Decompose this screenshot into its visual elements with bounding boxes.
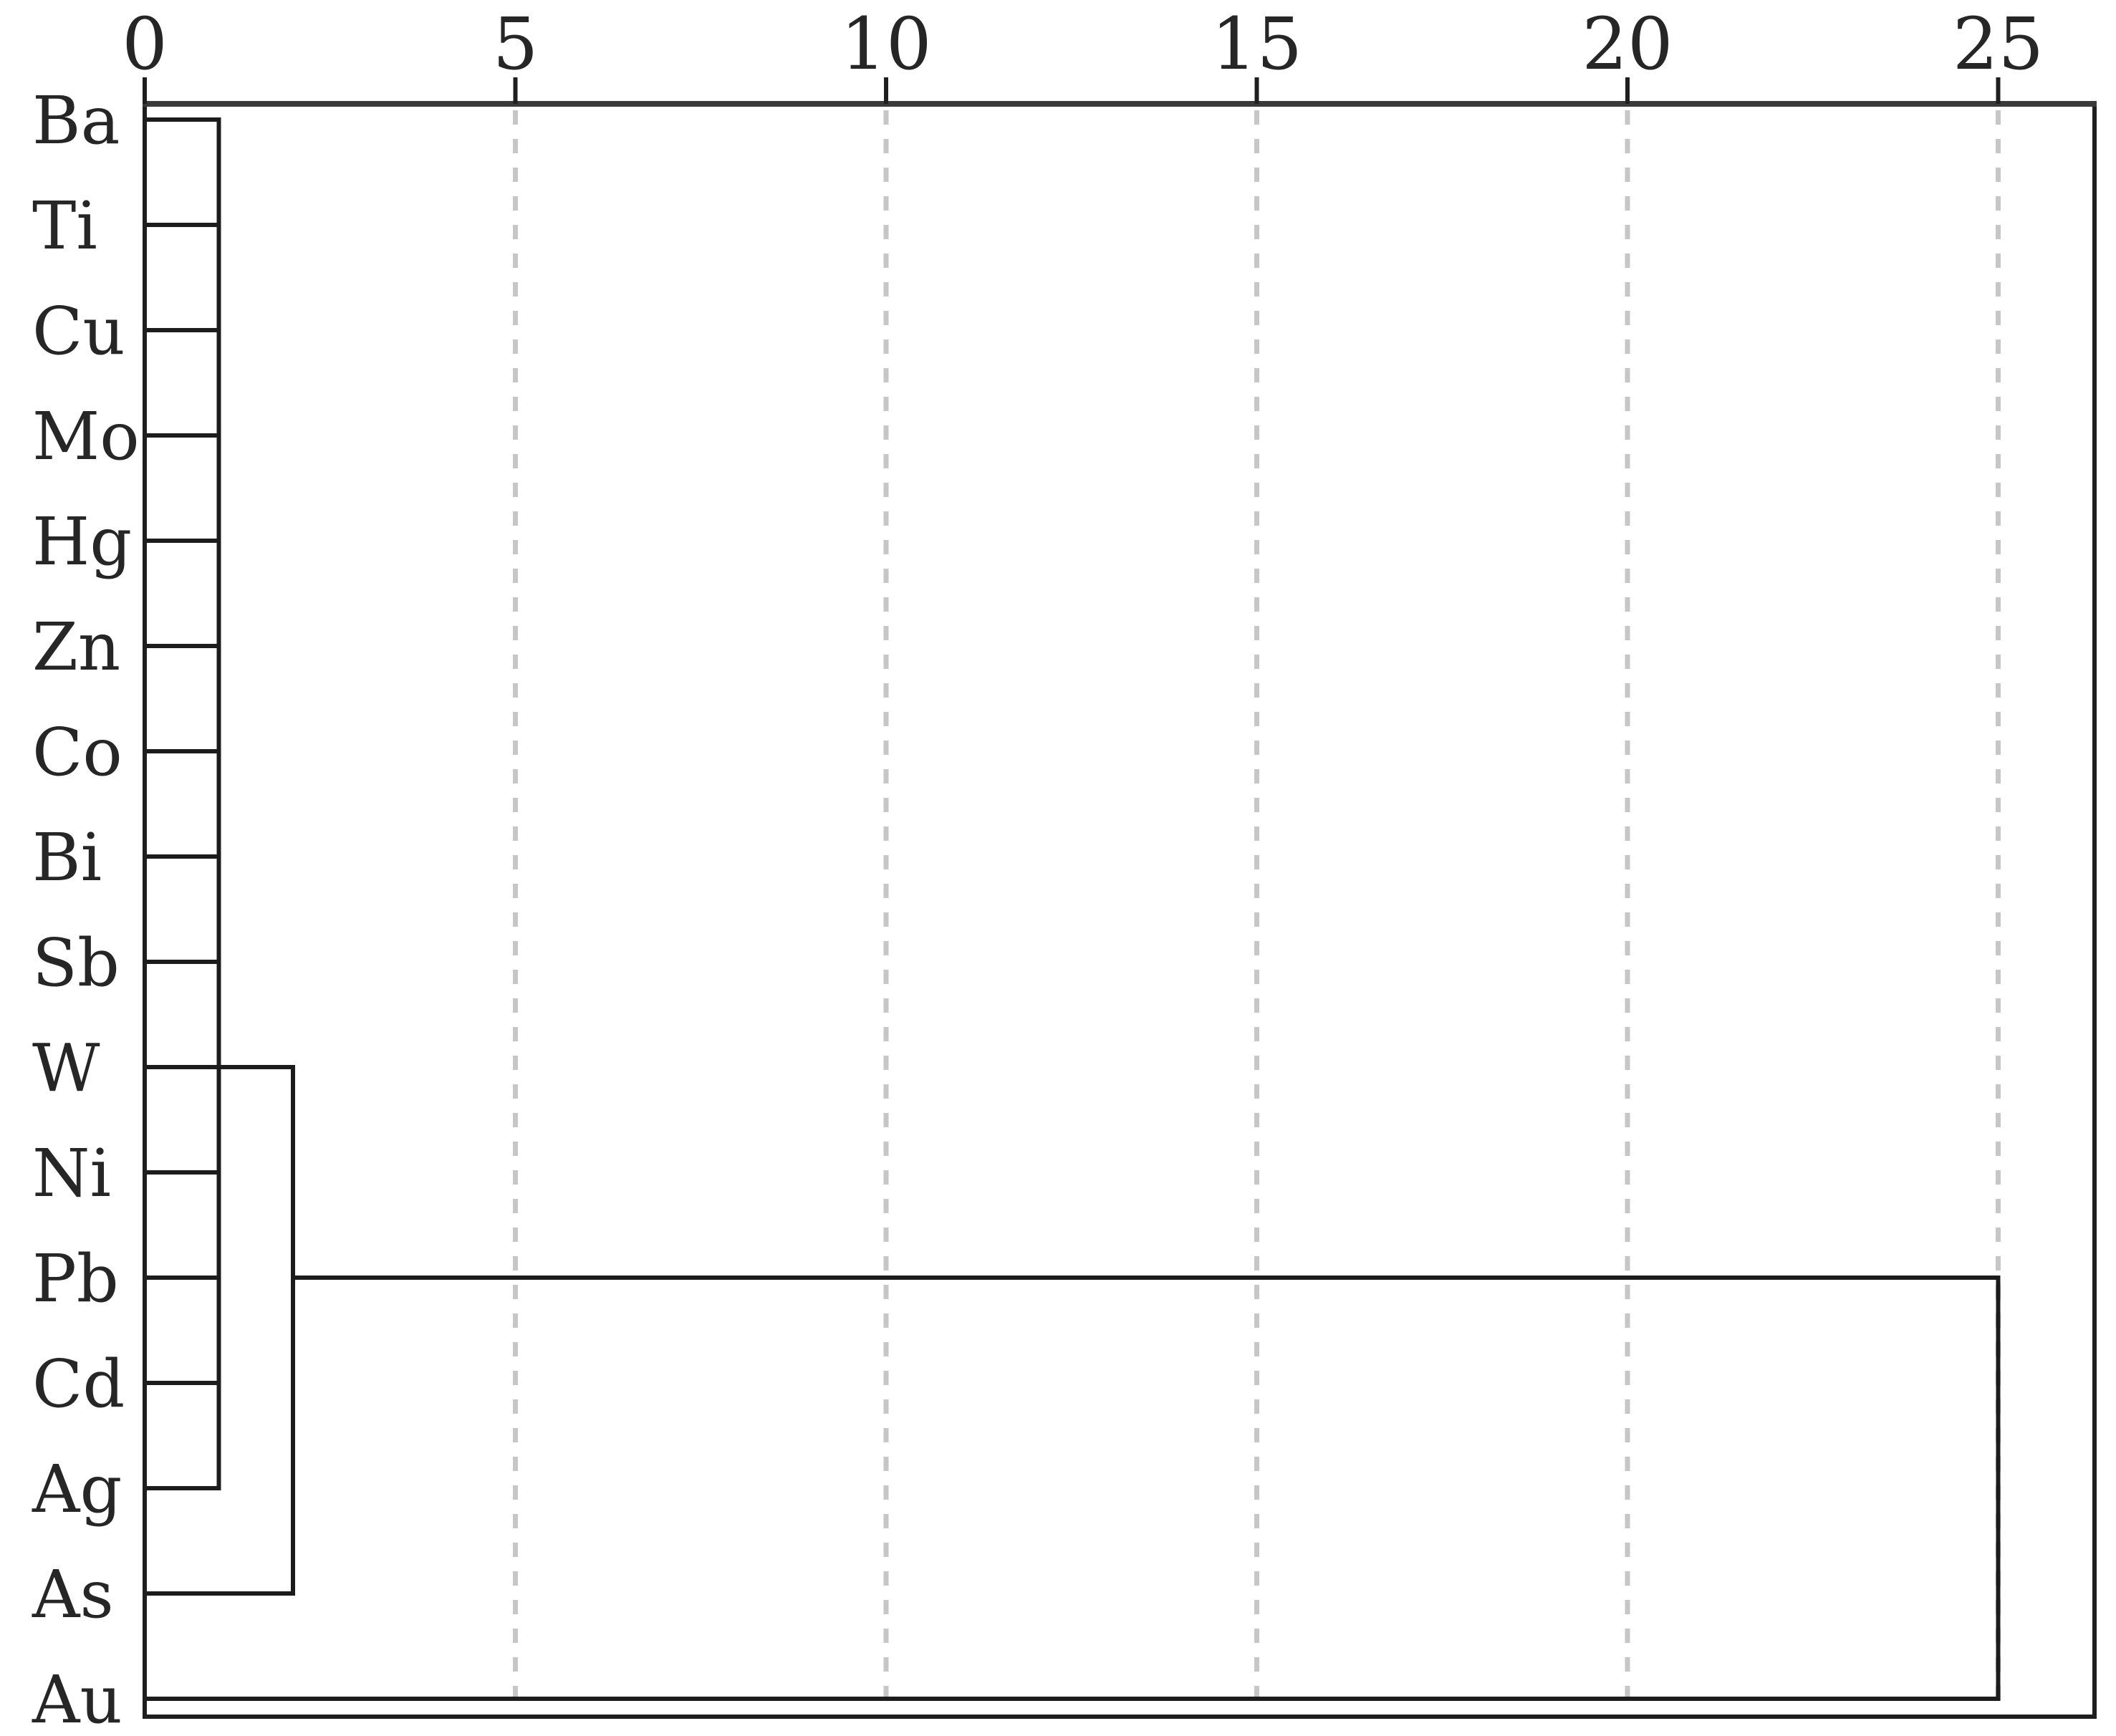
row-label-Cd: Cd [32, 1346, 125, 1422]
row-label-Sb: Sb [32, 925, 120, 1001]
row-label-Mo: Mo [32, 398, 140, 475]
row-label-Pb: Pb [32, 1240, 119, 1317]
row-label-Zn: Zn [32, 609, 120, 685]
row-label-As: As [32, 1556, 114, 1633]
dendrogram-figure: 0510152025BaTiCuMoHgZnCoBiSbWNiPbCdAgAsA… [0, 0, 2116, 1736]
axis-tick-label-5: 5 [493, 2, 539, 86]
row-label-Ni: Ni [32, 1135, 111, 1212]
row-label-Ba: Ba [32, 82, 120, 159]
row-label-Bi: Bi [32, 819, 102, 896]
row-label-Ag: Ag [32, 1451, 122, 1528]
axis-tick-label-25: 25 [1953, 2, 2044, 86]
row-label-W: W [32, 1030, 100, 1106]
row-label-Co: Co [32, 714, 122, 791]
axis-tick-label-20: 20 [1582, 2, 1673, 86]
axis-tick-label-15: 15 [1211, 2, 1302, 86]
row-label-Au: Au [32, 1662, 122, 1736]
dendrogram-canvas: 0510152025BaTiCuMoHgZnCoBiSbWNiPbCdAgAsA… [0, 0, 2116, 1736]
row-label-Hg: Hg [32, 503, 132, 580]
axis-tick-label-10: 10 [840, 2, 931, 86]
axis-tick-label-0: 0 [122, 2, 168, 86]
row-label-Ti: Ti [32, 188, 97, 264]
row-label-Cu: Cu [32, 293, 125, 370]
